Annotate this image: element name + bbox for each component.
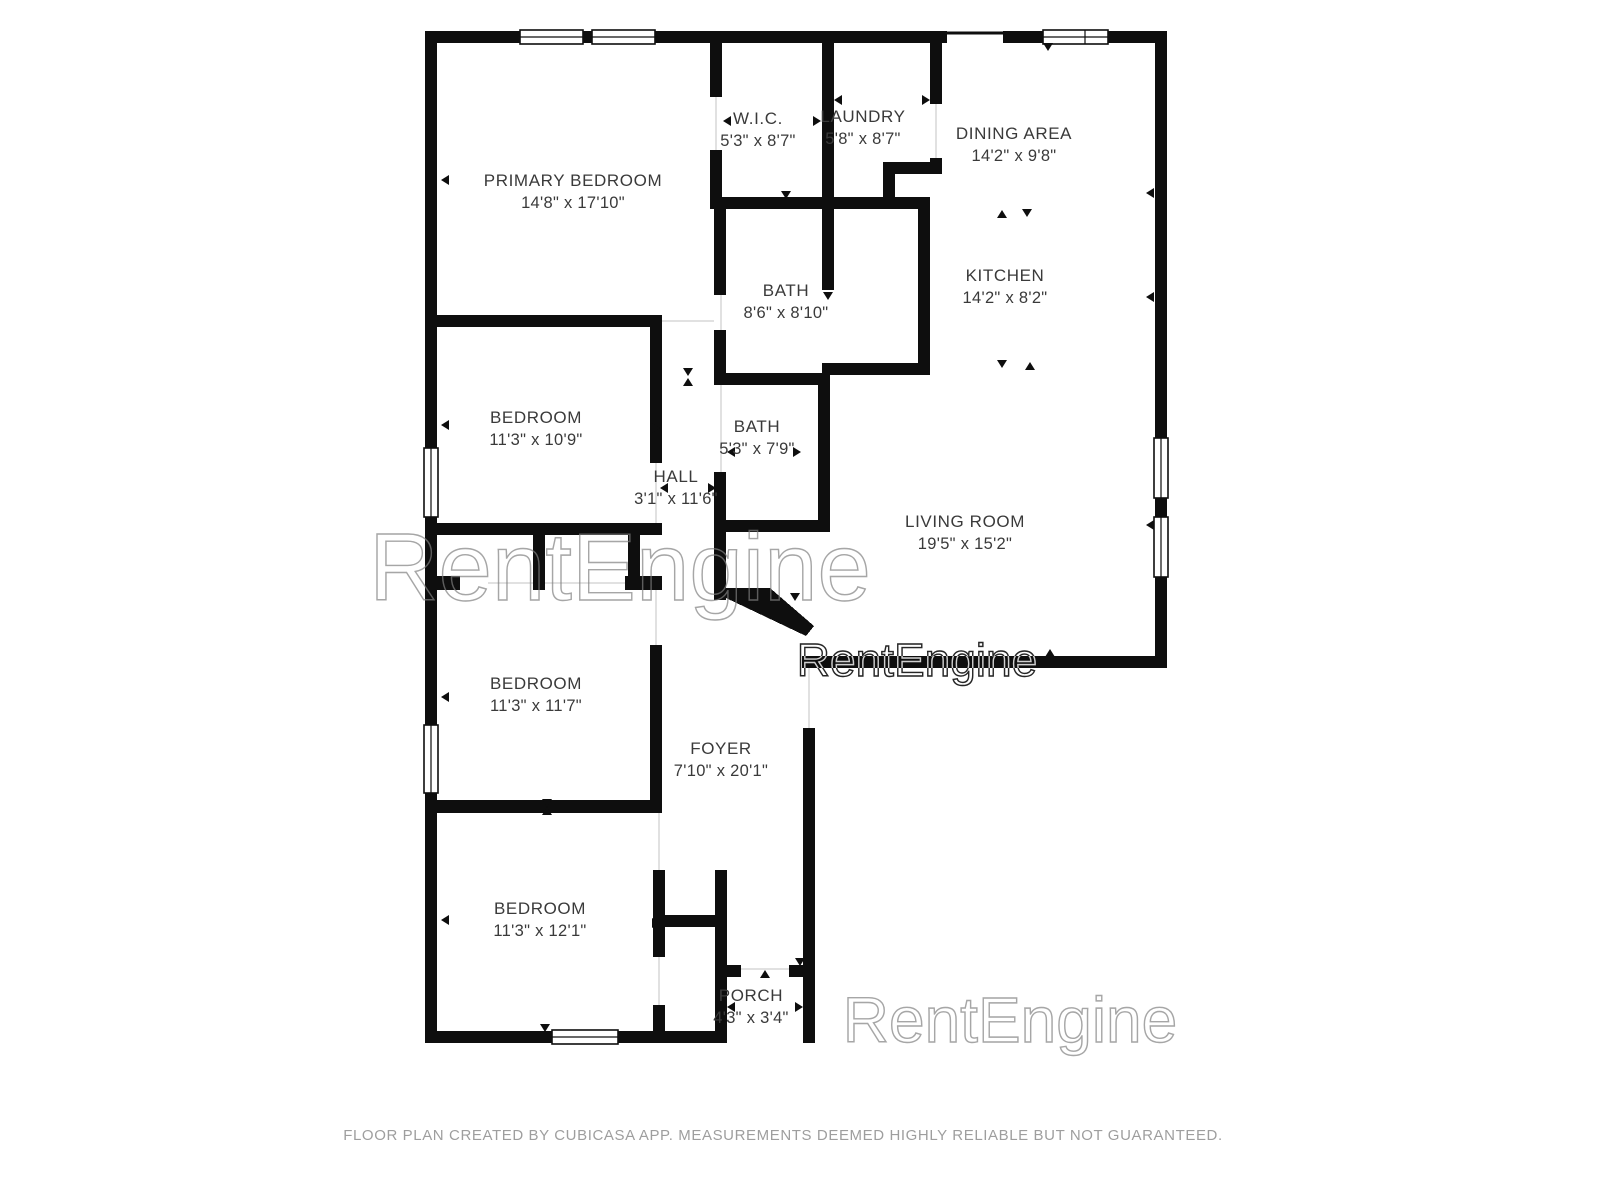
- footer-disclaimer: FLOOR PLAN CREATED BY CUBICASA APP. MEAS…: [0, 1127, 1566, 1144]
- door-marker-icon: [834, 95, 842, 105]
- room-label-porch: PORCH4'3" x 3'4": [713, 985, 788, 1029]
- room-name: BEDROOM: [490, 673, 582, 695]
- window: [592, 30, 655, 44]
- room-dimensions: 4'3" x 3'4": [713, 1007, 788, 1029]
- room-dimensions: 11'3" x 10'9": [489, 429, 582, 451]
- floor-plan-page: RentEngineRentEngineRentEngine PRIMARY B…: [0, 0, 1600, 1200]
- room-label-bedroom-3: BEDROOM11'3" x 12'1": [493, 898, 586, 942]
- window: [520, 30, 583, 44]
- room-dimensions: 5'8" x 8'7": [820, 128, 905, 150]
- room-dimensions: 5'3" x 8'7": [720, 130, 795, 152]
- room-name: HALL: [634, 466, 718, 488]
- room-name: W.I.C.: [720, 108, 795, 130]
- door-marker-icon: [760, 970, 770, 978]
- room-dimensions: 8'6" x 8'10": [744, 302, 829, 324]
- room-name: BATH: [719, 416, 794, 438]
- room-label-dining-area: DINING AREA14'2" x 9'8": [956, 123, 1072, 167]
- room-dimensions: 14'8" x 17'10": [484, 192, 662, 214]
- door-marker-icon: [540, 1024, 550, 1032]
- room-name: BEDROOM: [489, 407, 582, 429]
- window: [1154, 517, 1168, 577]
- room-dimensions: 11'3" x 12'1": [493, 920, 586, 942]
- window: [1043, 30, 1108, 44]
- door-marker-icon: [683, 378, 693, 386]
- door-marker-icon: [795, 1002, 803, 1012]
- door-marker-icon: [1022, 209, 1032, 217]
- door-marker-icon: [1043, 43, 1053, 51]
- door-marker-icon: [683, 368, 693, 376]
- door-marker-icon: [997, 210, 1007, 218]
- watermark-text: RentEngine: [369, 514, 871, 621]
- room-dimensions: 11'3" x 11'7": [490, 695, 582, 717]
- window: [424, 448, 438, 517]
- room-dimensions: 5'3" x 7'9": [719, 438, 794, 460]
- door-marker-icon: [441, 420, 449, 430]
- room-dimensions: 14'2" x 9'8": [956, 145, 1072, 167]
- watermark-text: RentEngine: [797, 634, 1037, 686]
- room-label-bath-hall: BATH5'3" x 7'9": [719, 416, 794, 460]
- door-marker-icon: [1146, 520, 1154, 530]
- room-dimensions: 7'10" x 20'1": [674, 760, 768, 782]
- door-marker-icon: [1146, 188, 1154, 198]
- door-marker-icon: [922, 95, 930, 105]
- room-label-living-room: LIVING ROOM19'5" x 15'2": [905, 511, 1025, 555]
- room-label-bedroom-1: BEDROOM11'3" x 10'9": [489, 407, 582, 451]
- room-name: FOYER: [674, 738, 768, 760]
- door-marker-icon: [1045, 649, 1055, 657]
- floor-plan-canvas: RentEngineRentEngineRentEngine: [0, 0, 1600, 1200]
- watermark-text: RentEngine: [843, 984, 1177, 1056]
- room-dimensions: 14'2" x 8'2": [963, 287, 1048, 309]
- room-name: KITCHEN: [963, 265, 1048, 287]
- room-name: BATH: [744, 280, 829, 302]
- room-name: PRIMARY BEDROOM: [484, 170, 662, 192]
- room-label-kitchen: KITCHEN14'2" x 8'2": [963, 265, 1048, 309]
- door-marker-icon: [997, 360, 1007, 368]
- room-dimensions: 3'1" x 11'6": [634, 488, 718, 510]
- window: [424, 725, 438, 793]
- window: [552, 1030, 618, 1044]
- watermark-layer: RentEngineRentEngineRentEngine: [369, 514, 1177, 1056]
- door-marker-icon: [1146, 292, 1154, 302]
- room-label-foyer: FOYER7'10" x 20'1": [674, 738, 768, 782]
- room-name: LIVING ROOM: [905, 511, 1025, 533]
- room-label-wic: W.I.C.5'3" x 8'7": [720, 108, 795, 152]
- room-label-laundry: LAUNDRY5'8" x 8'7": [820, 106, 905, 150]
- door-marker-icon: [441, 175, 449, 185]
- door-marker-icon: [441, 915, 449, 925]
- room-name: LAUNDRY: [820, 106, 905, 128]
- door-marker-icon: [1025, 362, 1035, 370]
- room-label-bath-main: BATH8'6" x 8'10": [744, 280, 829, 324]
- door-marker-icon: [441, 692, 449, 702]
- room-name: BEDROOM: [493, 898, 586, 920]
- room-name: PORCH: [713, 985, 788, 1007]
- room-name: DINING AREA: [956, 123, 1072, 145]
- room-label-primary-bedroom: PRIMARY BEDROOM14'8" x 17'10": [484, 170, 662, 214]
- room-dimensions: 19'5" x 15'2": [905, 533, 1025, 555]
- room-label-hall: HALL3'1" x 11'6": [634, 466, 718, 510]
- room-label-bedroom-2: BEDROOM11'3" x 11'7": [490, 673, 582, 717]
- window: [1154, 438, 1168, 498]
